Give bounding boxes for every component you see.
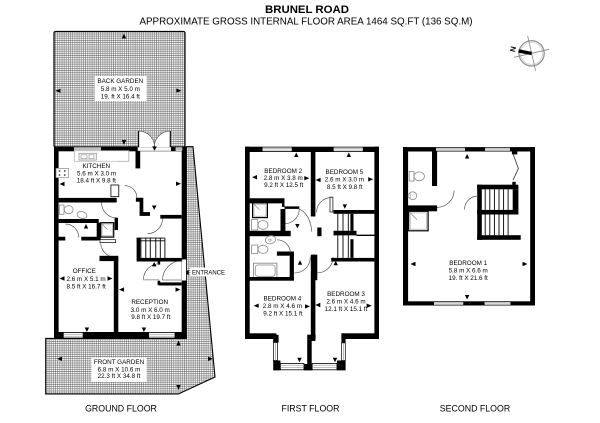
svg-text:OFFICE: OFFICE: [73, 268, 96, 275]
svg-text:5.6 m X 3.0 m: 5.6 m X 3.0 m: [77, 170, 116, 177]
svg-text:2.8 m X 4.6 m: 2.8 m X 4.6 m: [263, 303, 302, 310]
svg-text:FRONT GARDEN: FRONT GARDEN: [94, 359, 145, 366]
svg-text:22.3 ft X 34.8 ft: 22.3 ft X 34.8 ft: [98, 373, 141, 380]
svg-text:9.8 ft X 19.7 ft: 9.8 ft X 19.7 ft: [131, 314, 170, 321]
svg-text:2.6 m X 5.1 m: 2.6 m X 5.1 m: [66, 276, 105, 283]
svg-text:FIRST FLOOR: FIRST FLOOR: [281, 404, 339, 414]
svg-text:9.2 ft X 15.1 ft: 9.2 ft X 15.1 ft: [263, 310, 302, 317]
svg-text:BACK GARDEN: BACK GARDEN: [97, 78, 143, 85]
svg-text:KITCHEN: KITCHEN: [82, 163, 110, 170]
svg-text:RECEPTION: RECEPTION: [131, 299, 168, 306]
svg-text:2.6 m X 4.6 m: 2.6 m X 4.6 m: [326, 299, 365, 306]
svg-text:8.5 ft X 9.8 ft: 8.5 ft X 9.8 ft: [327, 184, 363, 191]
svg-text:9.2 ft X 12.5 ft: 9.2 ft X 12.5 ft: [264, 182, 303, 189]
svg-text:APPROXIMATE GROSS INTERNAL FLO: APPROXIMATE GROSS INTERNAL FLOOR AREA 14…: [139, 16, 472, 27]
svg-text:BEDROOM 4: BEDROOM 4: [264, 296, 302, 303]
svg-text:SECOND FLOOR: SECOND FLOOR: [440, 404, 510, 414]
svg-text:BEDROOM 5: BEDROOM 5: [326, 169, 364, 176]
svg-text:BEDROOM 1: BEDROOM 1: [449, 260, 487, 267]
svg-text:18.4 ft X 9.8 ft: 18.4 ft X 9.8 ft: [77, 178, 116, 185]
svg-text:5.8 m X 6.6 m: 5.8 m X 6.6 m: [449, 268, 488, 275]
svg-text:5.8 m X 5.0 m: 5.8 m X 5.0 m: [101, 86, 140, 93]
svg-text:ENTRANCE: ENTRANCE: [192, 270, 225, 276]
svg-text:BEDROOM 2: BEDROOM 2: [264, 168, 302, 175]
svg-text:19. ft X 16.4 ft: 19. ft X 16.4 ft: [101, 93, 140, 100]
svg-text:12.1 ft X 15.1 ft: 12.1 ft X 15.1 ft: [325, 306, 368, 313]
svg-text:19. ft X 21.6 ft: 19. ft X 21.6 ft: [449, 275, 488, 282]
svg-text:2.6 m X 3.0 m: 2.6 m X 3.0 m: [325, 177, 364, 184]
svg-text:BRUNEL ROAD: BRUNEL ROAD: [265, 4, 349, 16]
svg-text:GROUND FLOOR: GROUND FLOOR: [85, 404, 157, 414]
svg-text:2.8 m X 3.8 m: 2.8 m X 3.8 m: [264, 175, 303, 182]
svg-text:BEDROOM 3: BEDROOM 3: [327, 291, 365, 298]
svg-text:8.5 ft X 16.7 ft: 8.5 ft X 16.7 ft: [66, 284, 105, 291]
